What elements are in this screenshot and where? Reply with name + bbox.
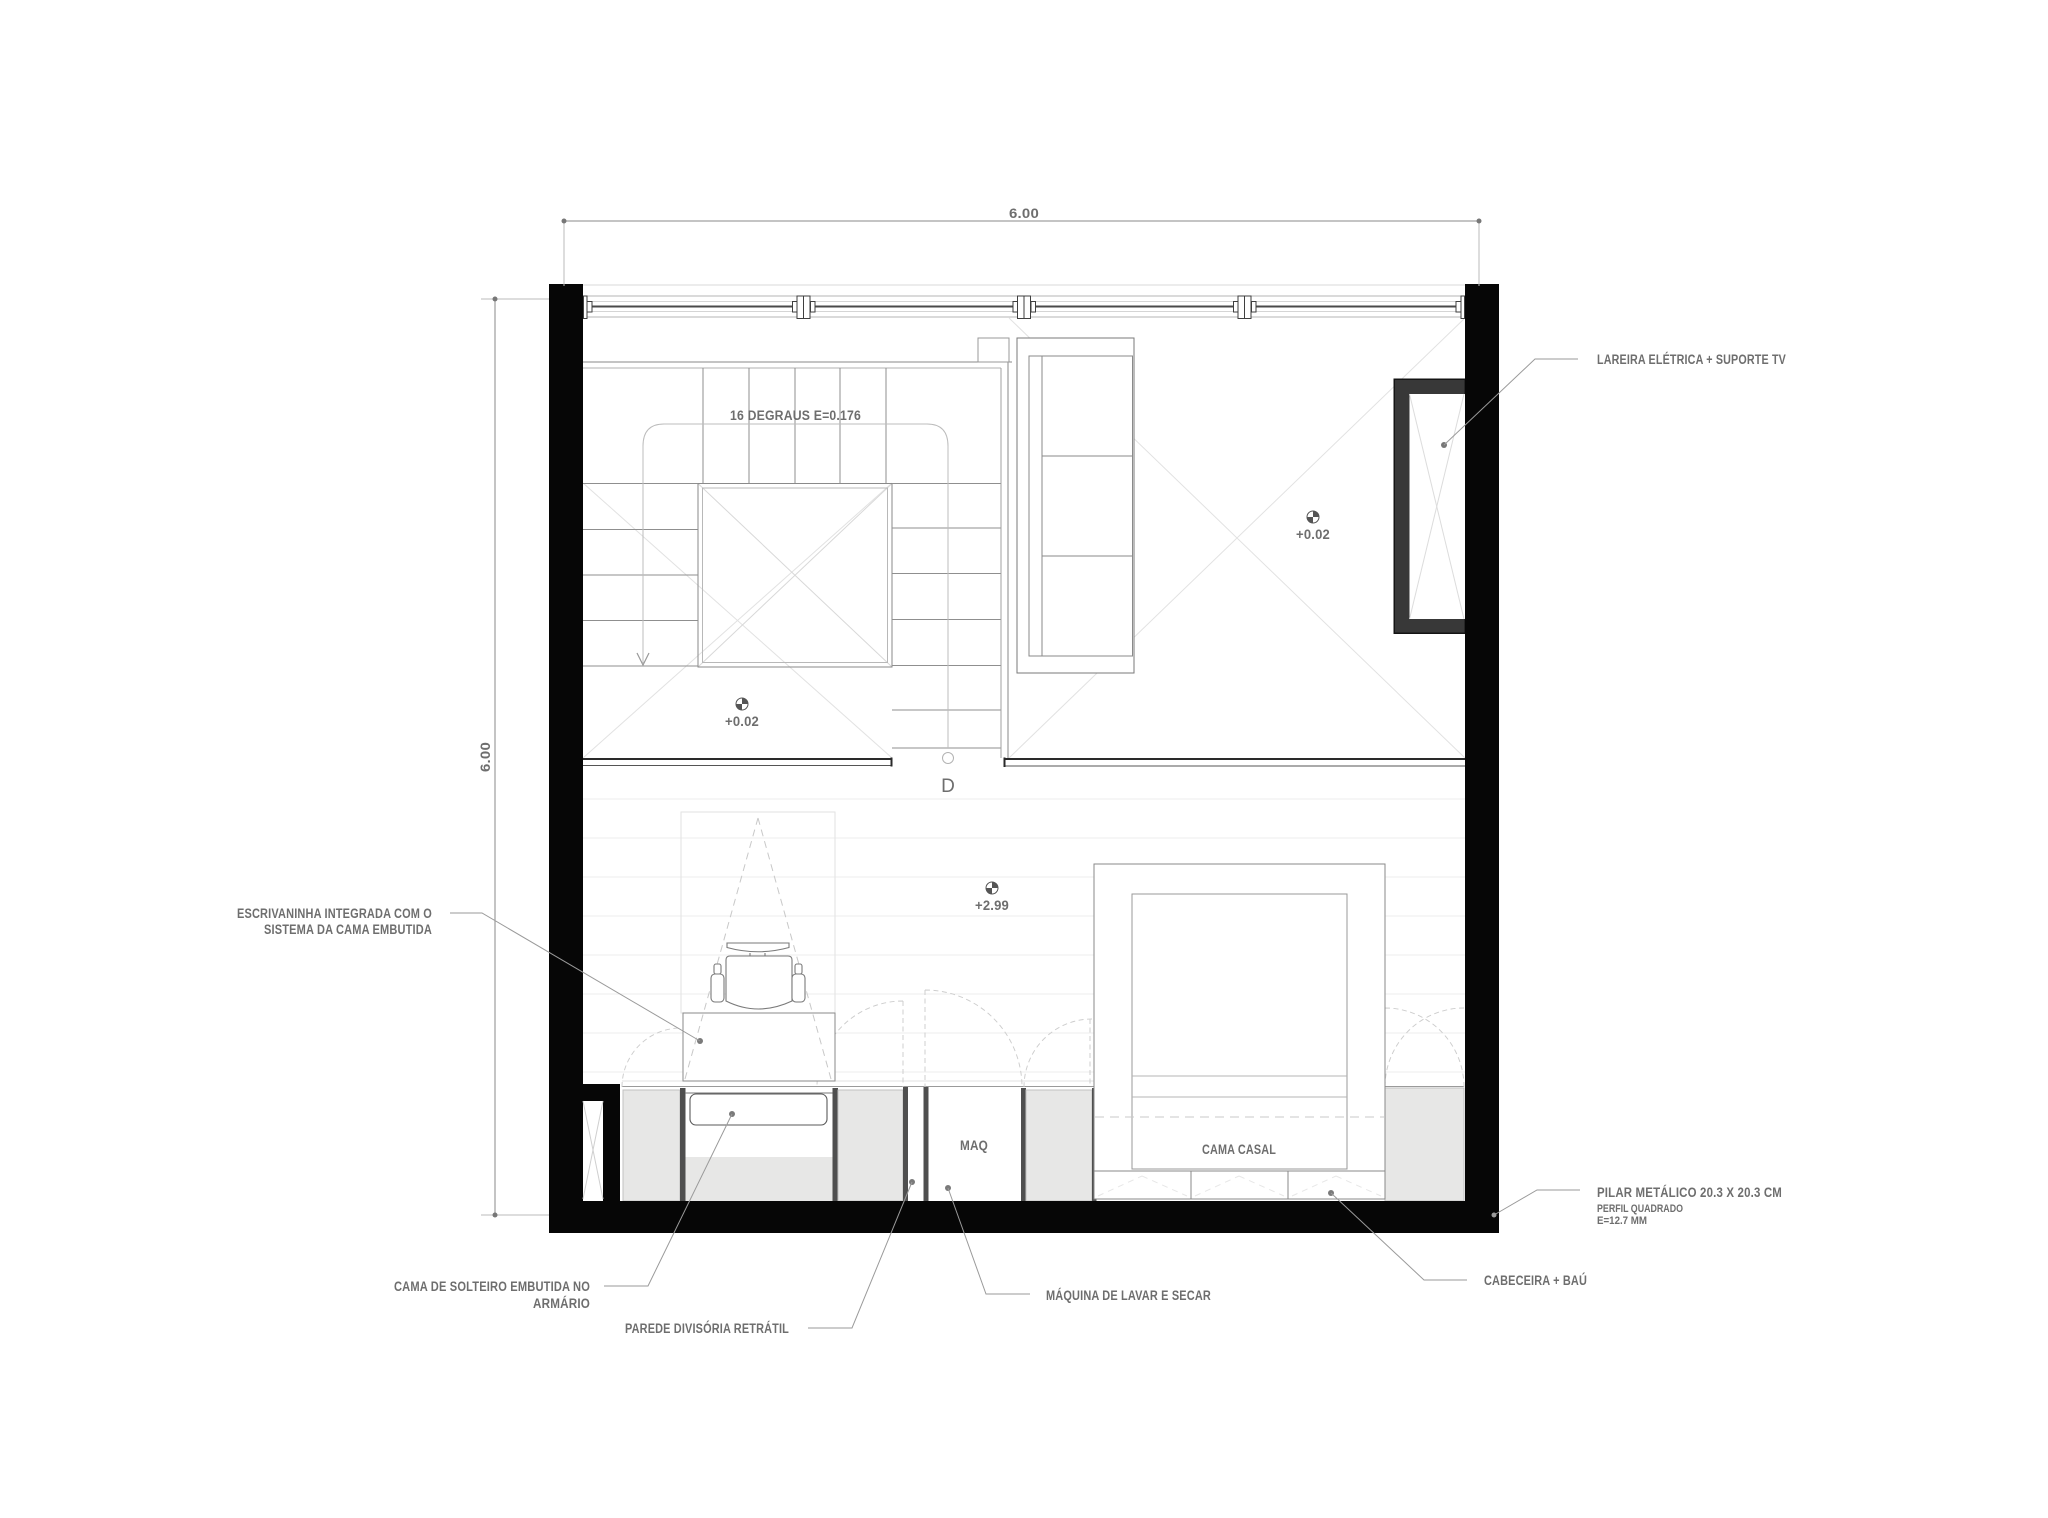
svg-text:MAQ: MAQ — [960, 1138, 988, 1153]
svg-text:MÁQUINA DE LAVAR E SECAR: MÁQUINA DE LAVAR E SECAR — [1046, 1288, 1211, 1303]
svg-text:E=12.7 MM: E=12.7 MM — [1597, 1215, 1647, 1227]
svg-text:ESCRIVANINHA INTEGRADA COM O: ESCRIVANINHA INTEGRADA COM O — [237, 906, 432, 921]
svg-text:+0.02: +0.02 — [1296, 527, 1330, 542]
svg-text:PILAR METÁLICO 20.3 X 20.3 CM: PILAR METÁLICO 20.3 X 20.3 CM — [1597, 1185, 1782, 1200]
svg-text:SISTEMA DA CAMA EMBUTIDA: SISTEMA DA CAMA EMBUTIDA — [264, 922, 432, 937]
svg-text:PERFIL QUADRADO: PERFIL QUADRADO — [1597, 1203, 1683, 1215]
svg-text:+0.02: +0.02 — [725, 714, 759, 729]
svg-text:D: D — [941, 776, 955, 797]
svg-text:6.00: 6.00 — [478, 742, 493, 772]
svg-text:CAMA CASAL: CAMA CASAL — [1202, 1142, 1276, 1157]
svg-text:6.00: 6.00 — [1009, 206, 1039, 221]
svg-text:16 DEGRAUS E=0.176: 16 DEGRAUS E=0.176 — [730, 408, 861, 423]
svg-text:+2.99: +2.99 — [975, 898, 1009, 913]
svg-text:ARMÁRIO: ARMÁRIO — [533, 1296, 590, 1311]
svg-text:CAMA DE SOLTEIRO EMBUTIDA NO: CAMA DE SOLTEIRO EMBUTIDA NO — [394, 1279, 590, 1294]
svg-text:PAREDE DIVISÓRIA RETRÁTIL: PAREDE DIVISÓRIA RETRÁTIL — [625, 1321, 789, 1336]
svg-text:CABECEIRA + BAÚ: CABECEIRA + BAÚ — [1484, 1273, 1587, 1288]
svg-text:LAREIRA ELÉTRICA + SUPORTE TV: LAREIRA ELÉTRICA + SUPORTE TV — [1597, 352, 1786, 367]
